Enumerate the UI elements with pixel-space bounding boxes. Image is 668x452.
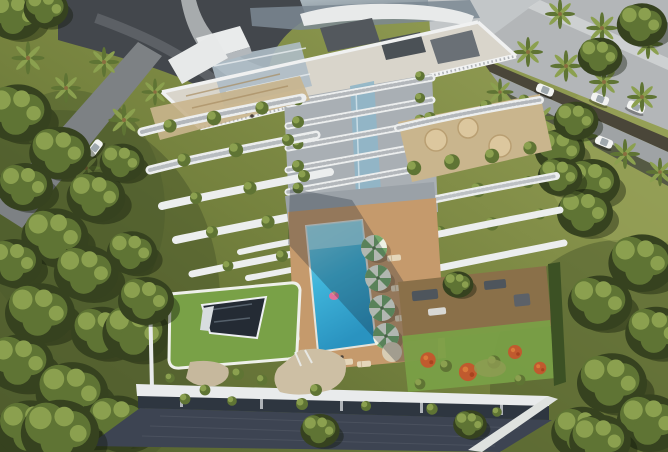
- lounger: [357, 361, 371, 368]
- flower-bed: [420, 352, 435, 367]
- palm-tree: [550, 50, 582, 82]
- terrace-pergola: [458, 118, 478, 138]
- shrub: [426, 403, 437, 414]
- lawn-mound: [474, 359, 506, 377]
- palm-tree: [610, 139, 640, 169]
- flower-bed: [534, 362, 547, 375]
- palm-tree: [51, 73, 81, 103]
- palm-tree: [89, 47, 119, 77]
- facade-column: [260, 398, 263, 409]
- shrub: [515, 375, 526, 386]
- terrace-pergola: [425, 129, 447, 151]
- outdoor-sofa: [513, 293, 530, 307]
- shrub: [180, 394, 191, 405]
- palm-tree: [108, 104, 140, 136]
- palm-tree: [627, 82, 657, 112]
- shrub: [492, 407, 502, 417]
- shrub: [165, 373, 175, 383]
- scene-canvas: [0, 0, 668, 452]
- shrub: [232, 368, 244, 380]
- palm-tree: [513, 37, 543, 67]
- flower-bed: [508, 345, 522, 359]
- shrub: [296, 398, 308, 410]
- shrub: [361, 401, 371, 411]
- shrub: [310, 384, 322, 396]
- facade-column: [420, 402, 423, 413]
- shrub: [200, 385, 211, 396]
- person: [250, 114, 254, 118]
- shrub: [257, 375, 268, 386]
- rock-garden: [186, 361, 229, 386]
- shrub: [415, 379, 426, 390]
- palm-tree: [12, 42, 45, 75]
- garden-terrace: [398, 262, 566, 392]
- facade-column: [340, 400, 343, 411]
- shrub: [440, 360, 452, 372]
- aerial-render: [0, 0, 668, 452]
- palm-tree: [545, 0, 575, 29]
- shrub: [227, 396, 237, 406]
- flower-bed: [459, 363, 477, 381]
